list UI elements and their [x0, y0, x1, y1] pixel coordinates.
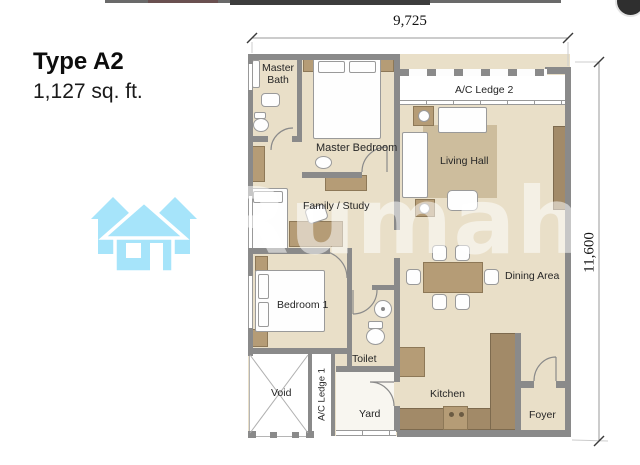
rumah-triple-house-logo-icon — [90, 191, 198, 273]
wall — [302, 172, 362, 178]
wall — [248, 54, 400, 60]
room-label-kitchen: Kitchen — [430, 388, 465, 400]
wall — [308, 352, 312, 436]
stove-burner — [449, 412, 454, 417]
wall-post — [292, 432, 299, 438]
wall — [292, 136, 302, 142]
window — [336, 430, 396, 436]
wall — [556, 381, 570, 388]
bath-sink — [261, 93, 280, 107]
dimension-top-label: 9,725 — [360, 13, 460, 30]
floor-plan-canvas: Type A2 1,127 sq. ft. — [0, 0, 640, 465]
dining-chair — [455, 294, 470, 310]
yard-area — [336, 372, 394, 430]
toilet-sink-drain — [381, 307, 385, 311]
room-label-master-bedroom: Master Bedroom — [316, 142, 397, 154]
bedroom1-pillow-top — [258, 274, 269, 299]
living-armchair — [447, 190, 478, 211]
room-label-ac-ledge-1: A/C Ledge 1 — [317, 355, 328, 435]
living-sofa-top — [438, 107, 487, 133]
wall — [397, 430, 571, 437]
bath-toilet-bowl — [253, 118, 269, 132]
wall — [331, 352, 335, 436]
wall — [252, 136, 268, 142]
plan-type-title: Type A2 — [33, 48, 124, 76]
dimension-right-label: 11,600 — [582, 203, 599, 303]
living-lamp-top — [418, 110, 430, 122]
stove-burner — [459, 412, 464, 417]
kitchen-stove — [443, 406, 468, 430]
room-label-family-study: Family / Study — [303, 200, 370, 212]
wall — [394, 406, 400, 432]
bedroom1-pillow-bottom — [258, 302, 269, 327]
room-label-bedroom-1: Bedroom 1 — [277, 299, 328, 311]
wall-post — [306, 431, 314, 438]
ac-ledge-2-hatched-wall — [400, 69, 547, 76]
room-label-toilet: Toilet — [352, 353, 377, 365]
study-bed-pillow — [253, 191, 283, 203]
wall — [521, 381, 534, 388]
wall-post — [248, 431, 256, 438]
room-label-dining-area: Dining Area — [505, 270, 559, 282]
study-desk — [289, 221, 343, 247]
kitchen-tall-cabinet — [490, 333, 517, 430]
dining-table — [423, 262, 483, 293]
logo-house-window — [126, 243, 141, 258]
wall — [545, 67, 571, 74]
window — [248, 276, 253, 328]
dining-chair — [484, 269, 499, 285]
dining-chair — [455, 245, 470, 261]
toilet-bowl — [366, 328, 385, 345]
room-label-master-bath: Master Bath — [257, 62, 299, 86]
bedroom1-nightstand-top — [255, 256, 268, 271]
wall — [248, 248, 330, 254]
room-label-foyer: Foyer — [529, 409, 556, 421]
cropped-corner-logo — [617, 0, 640, 15]
logo-house-door — [150, 243, 163, 272]
wall — [394, 160, 400, 230]
living-lamp-bottom — [419, 203, 430, 214]
logo-house-front-body — [115, 235, 173, 272]
dining-chair — [406, 269, 421, 285]
room-label-ac-ledge-2: A/C Ledge 2 — [455, 84, 513, 96]
room-label-yard: Yard — [359, 408, 380, 420]
dining-chair — [432, 294, 447, 310]
top-cropped-strip-accent — [148, 0, 218, 3]
room-label-void: Void — [271, 387, 291, 399]
room-label-living-hall: Living Hall — [440, 155, 488, 167]
master-pouf — [315, 156, 332, 169]
wall — [394, 258, 400, 382]
dining-chair — [432, 245, 447, 261]
wall — [336, 366, 394, 372]
living-sofa-left — [402, 132, 428, 198]
window — [248, 64, 253, 90]
wall-post — [270, 432, 277, 438]
window — [400, 100, 565, 105]
master-bed-pillow-right — [349, 61, 376, 73]
top-cropped-strip-dark — [230, 0, 430, 5]
kitchen-island — [399, 347, 425, 377]
window — [248, 196, 253, 248]
plan-area-label: 1,127 sq. ft. — [33, 80, 143, 104]
wall — [248, 348, 352, 354]
wall — [372, 285, 394, 290]
master-bed-pillow-left — [318, 61, 345, 73]
